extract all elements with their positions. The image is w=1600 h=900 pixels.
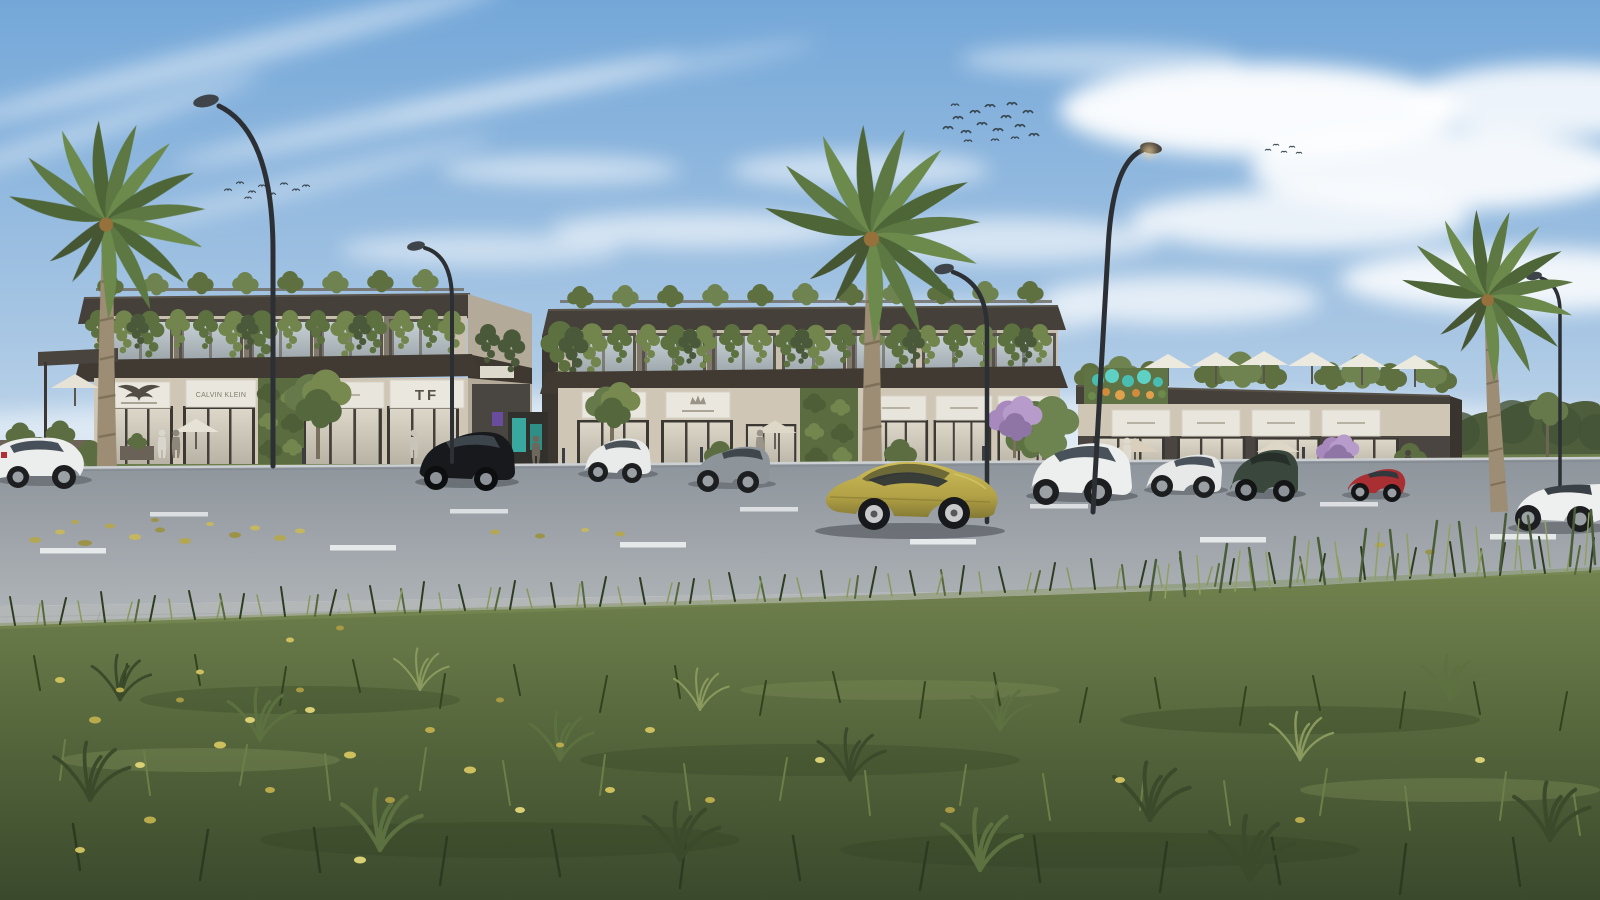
tom-ford-label: TF <box>415 387 439 404</box>
sign-right-store-2 <box>1182 410 1240 436</box>
sign-calvin-klein: CALVIN KLEIN <box>186 380 256 407</box>
sign-crown-store-2 <box>666 392 730 418</box>
calvin-klein-label: CALVIN KLEIN <box>196 392 247 399</box>
scene-canvas: CALVIN KLEIN TF <box>0 0 1600 900</box>
architectural-render-scene: CALVIN KLEIN TF <box>0 0 1600 900</box>
sign-right-store-3 <box>1252 410 1310 436</box>
sign-right-store-4 <box>1322 410 1380 436</box>
sign-emporio-armani <box>108 382 170 408</box>
green-wall-art-sign <box>1084 368 1168 404</box>
sign-right-store-1 <box>1112 410 1170 436</box>
building-right-side-face <box>1450 396 1462 462</box>
sign-middle-store-4 <box>936 396 992 420</box>
